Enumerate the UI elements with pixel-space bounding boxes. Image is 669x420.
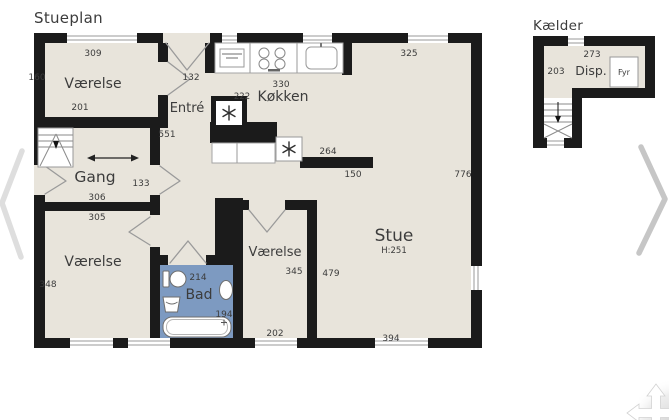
measurement-776: 776 [454,170,471,180]
measurement-194: 194 [215,310,232,320]
chevron-right-icon [639,147,665,253]
measurement-222: 222 [234,92,250,102]
kaelder-plan: Kælder [533,18,655,148]
bathtub-icon [163,317,231,337]
room-label-stue: Stue [375,226,414,246]
measurement-309: 309 [84,49,101,59]
measurement-551: 551 [158,130,175,140]
stairs [38,128,73,167]
measurement-348: 348 [39,280,56,290]
measurement-479: 479 [322,269,339,279]
freezer-icon [216,101,242,125]
fridge-icon [276,137,302,161]
room-label-vaerelse-sw: Værelse [64,254,121,270]
measurement-203: 203 [547,67,564,77]
measurement-305: 305 [88,213,105,223]
measurement-325: 325 [400,49,417,59]
room-label-gang: Gang [74,168,115,186]
measurement-273: 273 [583,50,600,60]
measurement-150: 150 [344,170,361,180]
room-label-vaerelse-mid: Værelse [248,245,301,260]
room-label-disp: Disp. [575,63,607,78]
chevron-left-icon [2,151,22,257]
washbasin-icon [163,297,180,312]
room-label-vaerelse-nw: Værelse [64,76,121,92]
pan-button[interactable] [626,378,669,420]
stueplan-plan: Stueplan [28,9,482,348]
measurement-345: 345 [285,267,302,277]
measurement-133: 133 [132,179,149,189]
room-label-entre: Entré [170,101,205,116]
room-height-label: H:251 [381,246,406,256]
basement-title: Kælder [533,18,583,34]
room-label-bad: Bad [185,287,212,303]
room-label-koekken: Køkken [258,89,309,105]
next-image-button[interactable] [639,147,665,253]
toilet-icon [163,271,186,287]
furnace-room: Fyr [610,57,638,87]
measurement-264: 264 [319,147,336,157]
measurement-394: 394 [382,334,399,344]
plan-title: Stueplan [34,9,103,27]
measurement-132: 132 [182,73,199,83]
measurement-160: 160 [28,73,45,83]
measurement-202: 202 [266,329,283,339]
measurement-306: 306 [88,193,105,203]
previous-image-button[interactable] [2,151,22,257]
bathroom-sink-icon [220,281,233,300]
gallery-floorplan-image[interactable]: Stueplan [0,0,669,420]
measurement-201: 201 [71,103,88,113]
measurement-214: 214 [189,273,206,283]
floorplan-viewer: Stueplan [0,0,669,420]
room-label-fyr: Fyr [618,68,631,77]
measurement-330: 330 [272,80,289,90]
